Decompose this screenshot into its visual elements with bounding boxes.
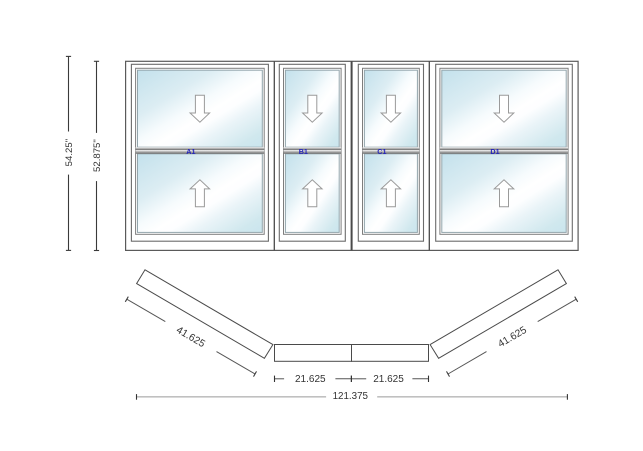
svg-text:D1: D1 — [490, 147, 499, 156]
svg-text:21.625: 21.625 — [295, 374, 326, 385]
svg-text:C1: C1 — [377, 147, 386, 156]
svg-text:21.625: 21.625 — [373, 374, 404, 385]
svg-text:121.375: 121.375 — [333, 391, 369, 402]
svg-text:52.875": 52.875" — [92, 139, 103, 172]
svg-text:B1: B1 — [299, 147, 308, 156]
svg-text:A1: A1 — [186, 147, 195, 156]
svg-text:54.25": 54.25" — [64, 139, 75, 166]
